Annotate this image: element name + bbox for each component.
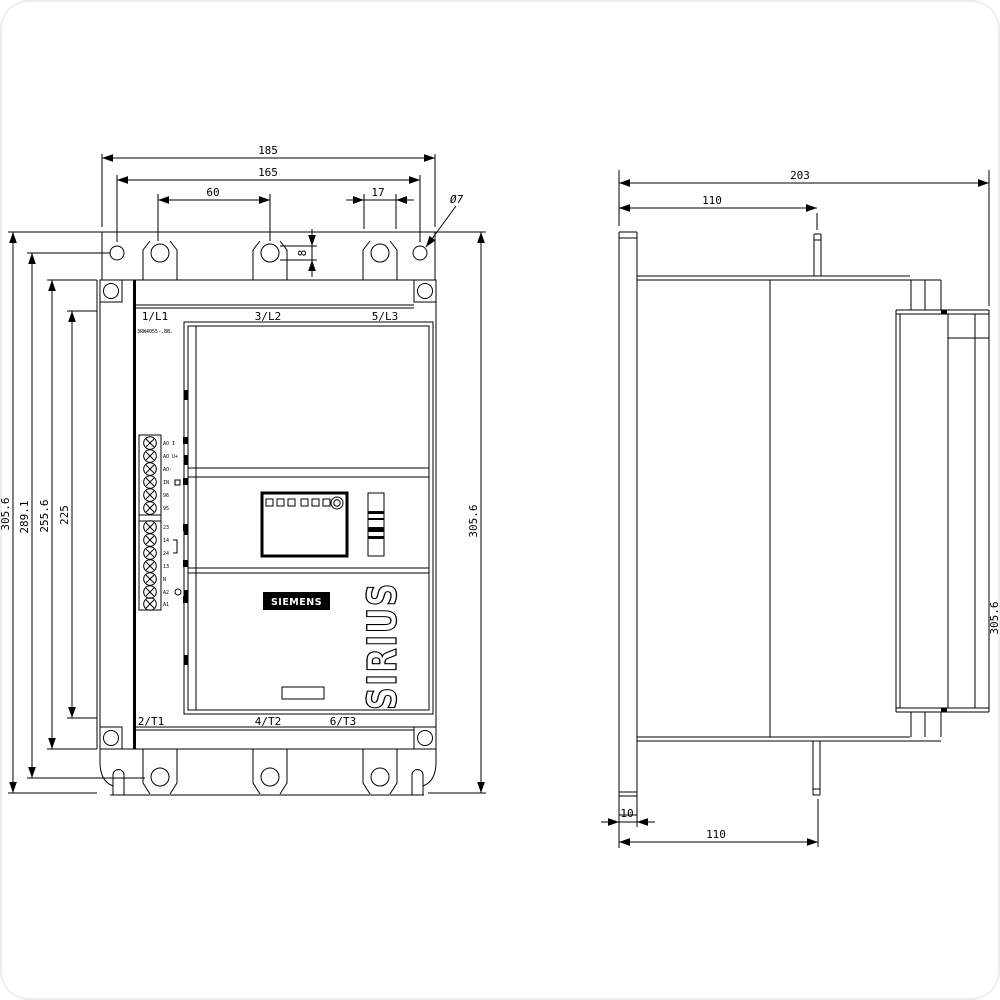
- type-number-label: 3RW4055-.BB.: [137, 329, 173, 335]
- side-outline: [619, 232, 989, 815]
- ctrl-terminal-label: N: [163, 577, 166, 583]
- ctrl-terminal-label: AO U+: [163, 454, 178, 460]
- terminal-label-4T2: 4/T2: [255, 715, 282, 728]
- bottom-slot: [282, 687, 324, 699]
- fixing-slot-hole: [371, 244, 389, 262]
- dim-overall-height: 305.6: [0, 497, 12, 530]
- fixing-hole: [413, 246, 427, 260]
- dim-panel-height: 225: [58, 505, 71, 525]
- fixing-hole: [110, 246, 124, 260]
- terminal-label-5L3: 5/L3: [372, 310, 399, 323]
- ctrl-terminal-label: 96: [163, 493, 169, 499]
- ctrl-terminal-label: A2: [163, 590, 169, 596]
- status-led: [288, 499, 295, 506]
- corner-screw: [104, 731, 119, 746]
- dim-slot-height: 8: [296, 250, 309, 257]
- dim-side-overall-height: 305.6: [988, 601, 1000, 634]
- body-edge-bar: [133, 280, 136, 749]
- top-mounting-flange: [100, 232, 436, 280]
- status-led: [266, 499, 273, 506]
- display-module: [262, 493, 384, 556]
- dim-hole-pitch: 60: [206, 186, 219, 199]
- image-frame: [1, 1, 999, 999]
- front-right-dimension: 305.6: [428, 232, 486, 793]
- drawing-svg: 1/L1 3/L2 5/L3 3RW4055-.BB. 2/T1 4/T2 6/…: [0, 0, 1000, 1000]
- ctrl-terminal-label: AO-: [163, 467, 172, 473]
- status-led: [277, 499, 284, 506]
- fixing-slot-hole: [261, 244, 279, 262]
- fixing-slot-hole: [261, 768, 279, 786]
- status-led: [323, 499, 330, 506]
- dim-housing-height: 255.6: [38, 499, 51, 532]
- dimension-drawing-canvas: 1/L1 3/L2 5/L3 3RW4055-.BB. 2/T1 4/T2 6/…: [0, 0, 1000, 1000]
- corner-screw: [104, 284, 119, 299]
- dim-overall-height-right: 305.6: [467, 504, 480, 537]
- branding: SIEMENS SIRIUS: [263, 582, 406, 710]
- dim-overall-depth: 203: [790, 169, 810, 182]
- terminal-label-1L1: 1/L1: [142, 310, 169, 323]
- dim-slot-width: 17: [371, 186, 384, 199]
- ctrl-terminal-label: 13: [163, 564, 169, 570]
- dim-overall-width: 185: [258, 144, 278, 157]
- ctrl-terminal-label: 24: [163, 551, 169, 557]
- front-top-dimensions: 185 165 60 17 8 Ø7: [102, 144, 464, 277]
- reset-button: [331, 497, 343, 509]
- reset-button-center: [334, 500, 340, 506]
- dim-fixing-depth-bottom: 110: [706, 828, 726, 841]
- siemens-logo-text: SIEMENS: [271, 597, 322, 608]
- corner-screw: [418, 731, 433, 746]
- ctrl-terminal-label: AO I: [163, 441, 175, 447]
- ctrl-terminal-label: IN: [163, 480, 169, 486]
- dim-hole-diameter: Ø7: [450, 193, 464, 206]
- front-left-dimensions: 305.6 289.1 255.6 225: [0, 232, 145, 793]
- ctrl-terminal-label: A1: [163, 602, 169, 608]
- control-terminal-block: AO I AO U+ AO- IN 96 95 23 14 24 13 N A2…: [139, 435, 188, 610]
- ctrl-terminal-label: 95: [163, 506, 169, 512]
- front-view: 1/L1 3/L2 5/L3 3RW4055-.BB. 2/T1 4/T2 6/…: [0, 144, 486, 795]
- status-led: [312, 499, 319, 506]
- fixing-slot-hole: [151, 244, 169, 262]
- dim-hole-span: 165: [258, 166, 278, 179]
- corner-screw: [418, 284, 433, 299]
- terminal-label-6T3: 6/T3: [330, 715, 357, 728]
- setting-selector: [368, 493, 384, 556]
- dim-fixing-depth-top: 110: [702, 194, 722, 207]
- dim-rail-thickness: 10: [620, 807, 633, 820]
- ctrl-terminal-label: 23: [163, 525, 169, 531]
- bottom-mounting-flange: [100, 749, 436, 795]
- ctrl-terminal-label: 14: [163, 538, 169, 544]
- fixing-slot-hole: [151, 768, 169, 786]
- side-view: 203 110 10 110 305.6: [601, 169, 1000, 848]
- terminal-label-3L2: 3/L2: [255, 310, 282, 323]
- side-dimensions: 203 110 10 110 305.6: [601, 169, 1000, 848]
- fixing-slot-hole: [371, 768, 389, 786]
- terminal-label-2T1: 2/T1: [138, 715, 165, 728]
- sirius-product-text: SIRIUS: [360, 582, 406, 710]
- status-led: [301, 499, 308, 506]
- dim-fixing-height: 289.1: [18, 500, 31, 533]
